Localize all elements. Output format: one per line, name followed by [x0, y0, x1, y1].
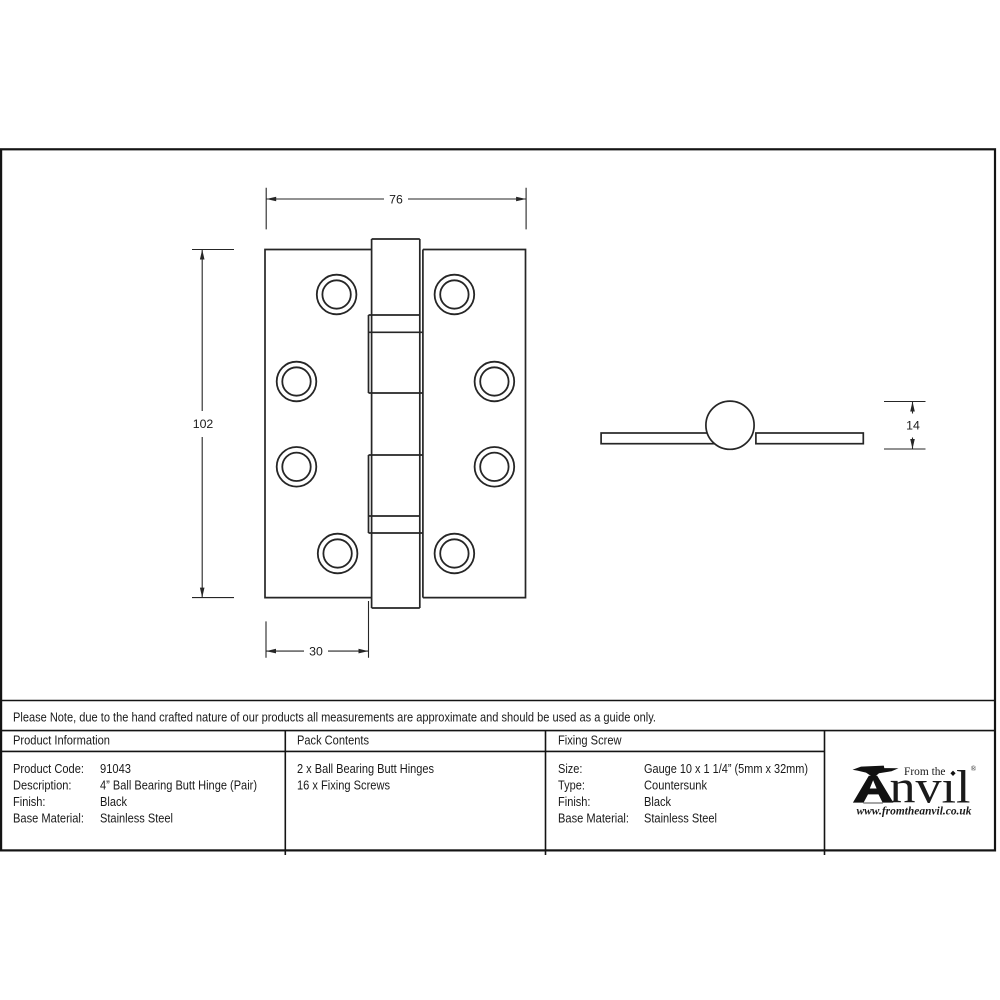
svg-text:®: ®	[971, 764, 977, 773]
svg-text:Pack Contents: Pack Contents	[297, 734, 369, 748]
svg-text:Base Material:: Base Material:	[13, 812, 84, 826]
svg-text:Product Code:: Product Code:	[13, 762, 84, 776]
svg-text:Countersunk: Countersunk	[644, 779, 708, 793]
svg-text:Black: Black	[100, 795, 128, 809]
svg-text:4” Ball Bearing Butt Hinge (Pa: 4” Ball Bearing Butt Hinge (Pair)	[100, 779, 257, 793]
svg-text:Stainless Steel: Stainless Steel	[644, 812, 717, 826]
svg-text:76: 76	[389, 192, 403, 206]
svg-text:Finish:: Finish:	[13, 795, 46, 809]
svg-text:Size:: Size:	[558, 762, 583, 776]
svg-text:Black: Black	[644, 795, 672, 809]
svg-text:16 x Fixing Screws: 16 x Fixing Screws	[297, 779, 390, 793]
svg-text:Product Information: Product Information	[13, 734, 110, 748]
svg-text:Gauge 10 x 1 1/4” (5mm x 32mm): Gauge 10 x 1 1/4” (5mm x 32mm)	[644, 762, 808, 776]
svg-text:Stainless Steel: Stainless Steel	[100, 812, 173, 826]
svg-text:Base Material:: Base Material:	[558, 812, 629, 826]
svg-text:2 x Ball Bearing Butt Hinges: 2 x Ball Bearing Butt Hinges	[297, 762, 434, 776]
svg-text:30: 30	[309, 644, 323, 658]
svg-text:Please Note, due to the hand c: Please Note, due to the hand crafted nat…	[13, 710, 656, 724]
svg-text:Fixing Screw: Fixing Screw	[558, 734, 622, 748]
svg-text:Type:: Type:	[558, 779, 585, 793]
svg-text:91043: 91043	[100, 762, 131, 776]
svg-text:14: 14	[906, 419, 920, 433]
svg-text:102: 102	[193, 417, 214, 431]
svg-text:www.fromtheanvil.co.uk: www.fromtheanvil.co.uk	[857, 806, 972, 818]
svg-text:Finish:: Finish:	[558, 795, 591, 809]
svg-text:Description:: Description:	[13, 779, 72, 793]
